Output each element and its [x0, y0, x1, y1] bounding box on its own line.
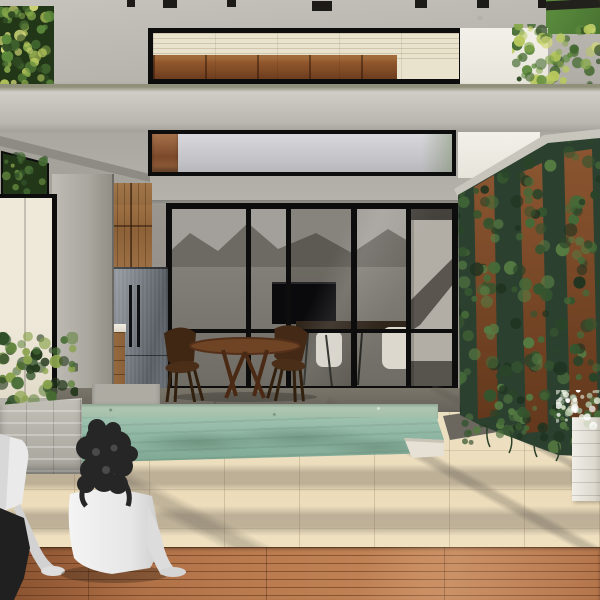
dining-set	[148, 316, 338, 402]
child-hair	[76, 419, 138, 494]
child-hand	[160, 567, 186, 577]
table-top	[190, 338, 300, 354]
foliage-cluster	[512, 24, 600, 88]
child-sitting	[61, 419, 186, 583]
glass-mullion	[406, 203, 411, 392]
roof-rafter-icon	[163, 0, 177, 8]
kitchen-upper-cabinets	[110, 183, 152, 269]
partial-figure	[0, 434, 65, 600]
roof-rafter-icon	[127, 0, 135, 7]
planting-opening-topleft	[0, 6, 54, 88]
copper-panel	[152, 134, 178, 172]
roof-rafter-icon	[415, 0, 427, 8]
fridge-handle	[137, 285, 140, 347]
clerestory-window	[148, 130, 456, 176]
bush-top-right	[512, 24, 600, 88]
table-legs	[223, 350, 267, 398]
roof-rafter-icon	[477, 0, 489, 8]
fridge-handle	[129, 285, 132, 347]
dining-chair-left	[162, 326, 203, 402]
roof-rafter-icon	[227, 0, 236, 7]
white-flowers	[556, 390, 600, 430]
dining-chair-right	[267, 324, 310, 402]
upper-floor-window	[148, 28, 464, 84]
cabinet-split	[130, 183, 132, 269]
pool-corner-coping	[398, 432, 446, 460]
glass-mullion	[351, 203, 357, 392]
roof-rafter-icon	[312, 1, 332, 11]
glass-frame-top	[166, 203, 458, 209]
figures	[0, 408, 200, 600]
courtyard-render	[0, 0, 600, 600]
interior-columns	[153, 33, 459, 79]
foliage-cluster	[556, 390, 600, 430]
